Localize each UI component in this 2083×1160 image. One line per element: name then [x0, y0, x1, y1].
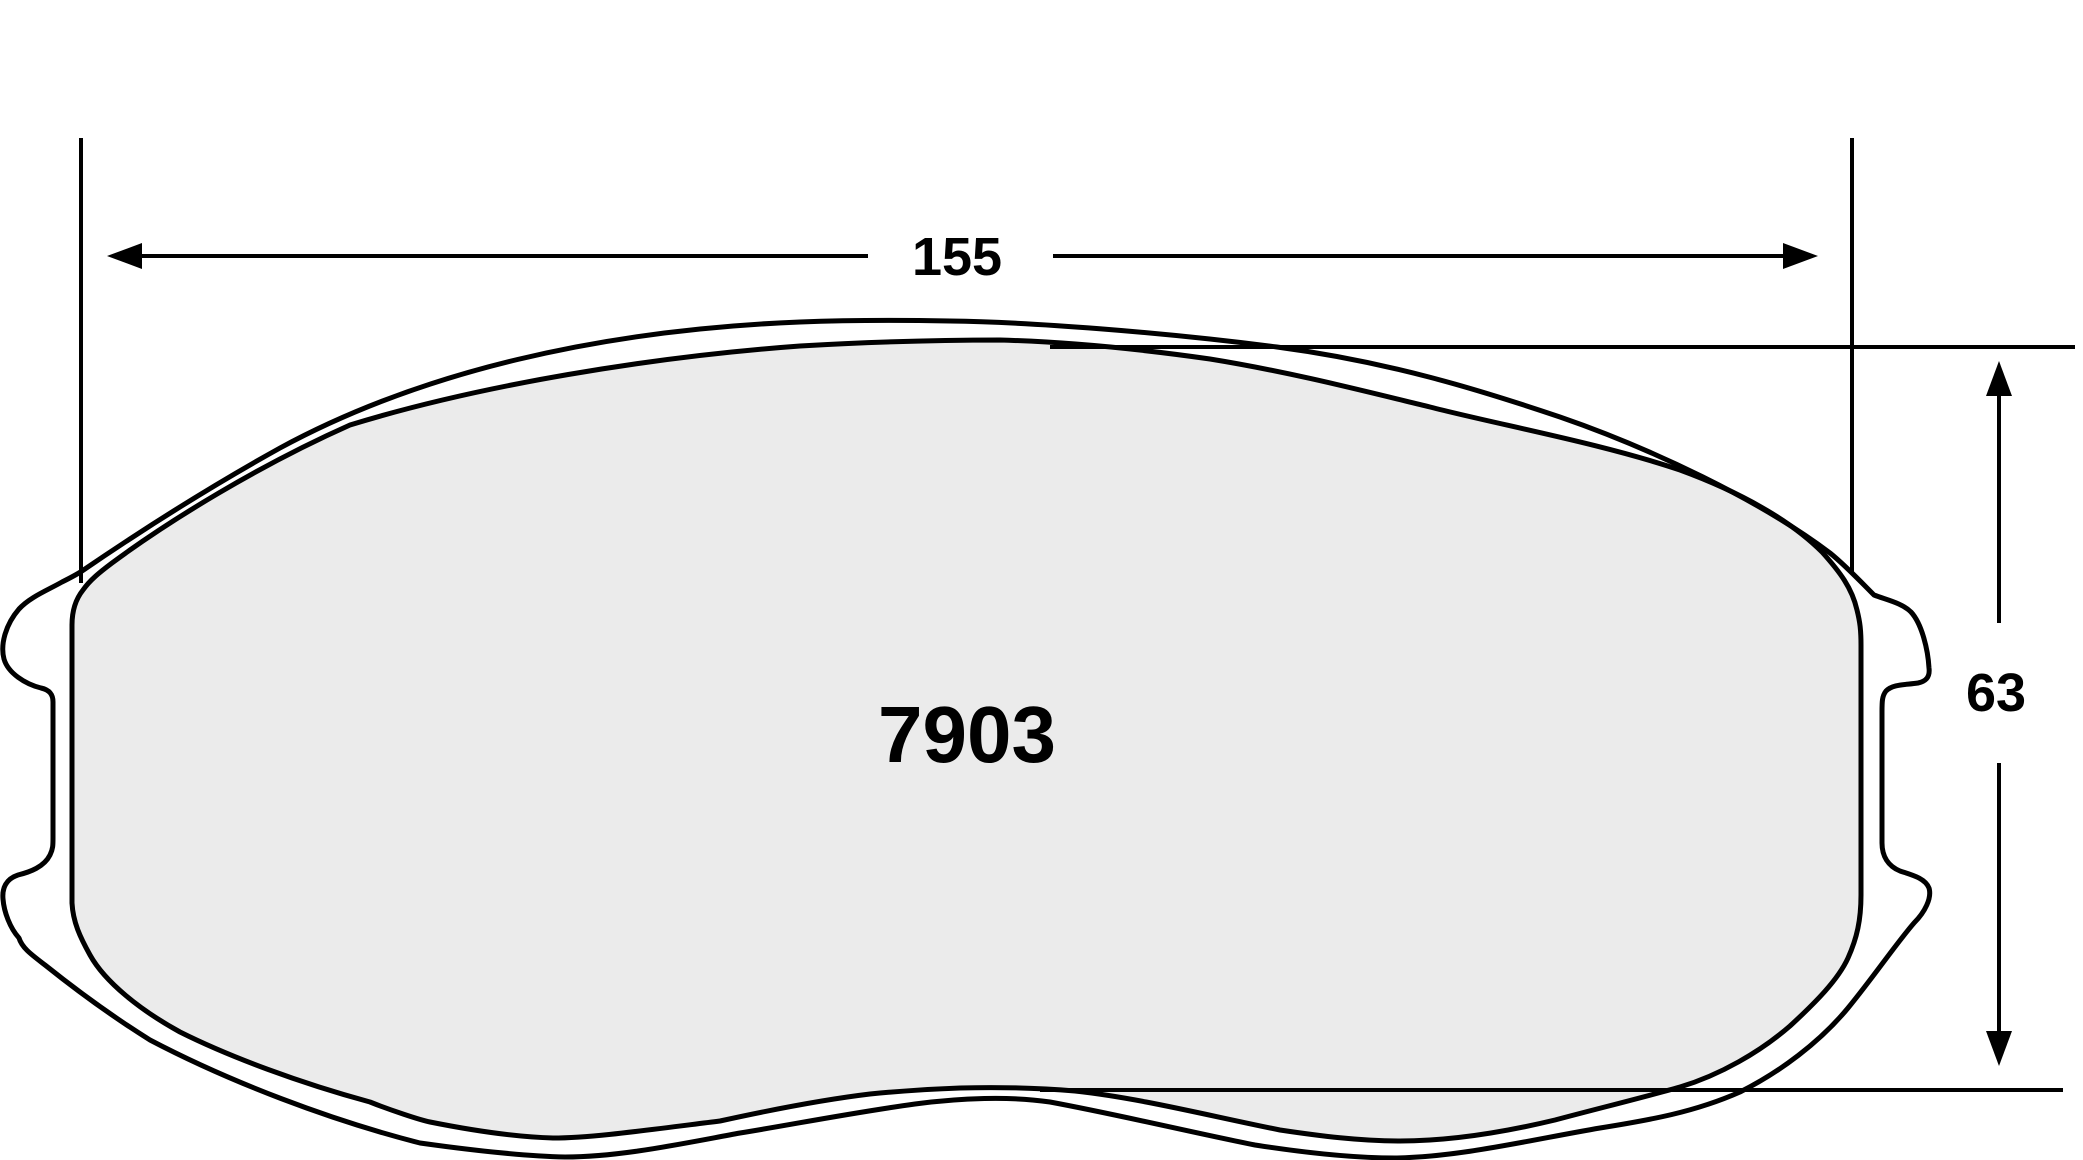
height-arrowhead-up: [1986, 361, 2012, 396]
part-number-label: 7903: [878, 690, 1056, 779]
brake-pad-diagram: 155 63 7903: [0, 0, 2083, 1160]
height-dimension-label: 63: [1966, 663, 2026, 723]
width-arrowhead-left: [107, 243, 142, 269]
height-arrowhead-down: [1986, 1031, 2012, 1066]
width-arrowhead-right: [1783, 243, 1818, 269]
width-dimension-label: 155: [912, 227, 1002, 287]
technical-drawing-canvas: 155 63 7903: [0, 0, 2083, 1160]
